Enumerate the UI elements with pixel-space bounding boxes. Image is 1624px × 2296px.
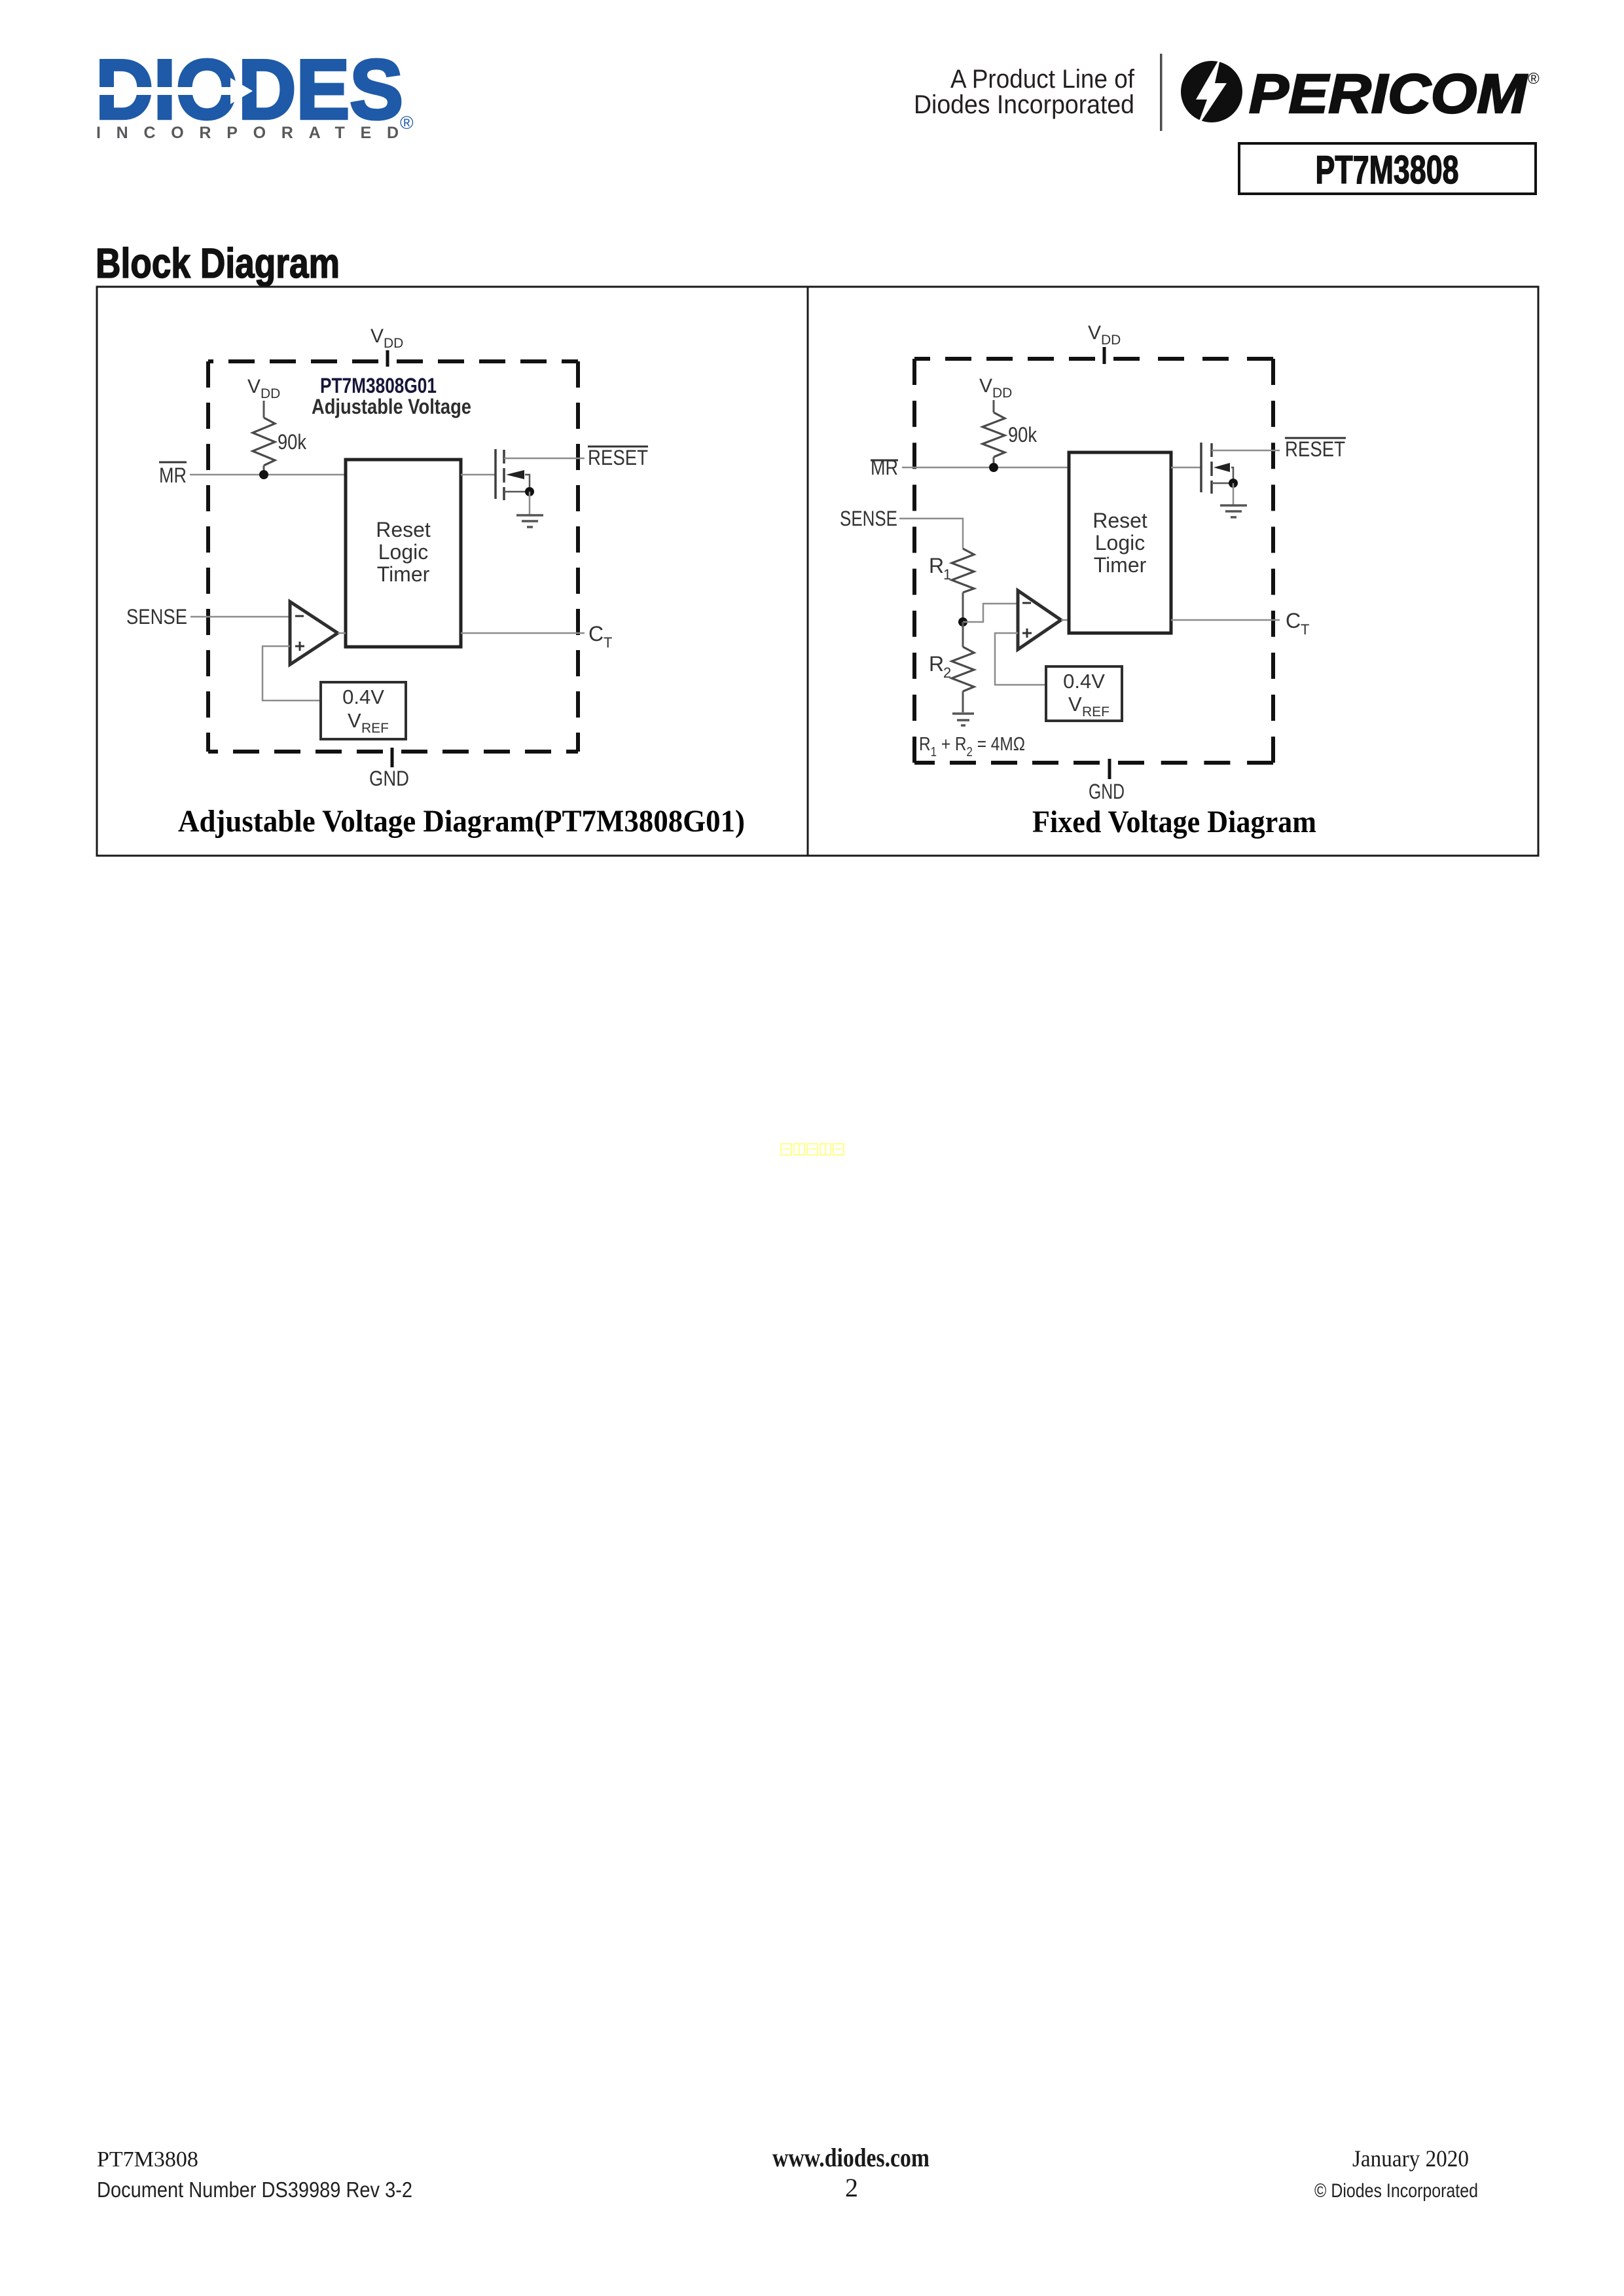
svg-text:Adjustable Voltage: Adjustable Voltage	[312, 395, 471, 418]
svg-text:DD: DD	[992, 386, 1012, 401]
svg-text:PT7M3808: PT7M3808	[97, 2147, 198, 2172]
svg-text:MR: MR	[159, 464, 187, 487]
svg-text:V: V	[348, 709, 361, 732]
svg-text:Adjustable Voltage Diagram(PT7: Adjustable Voltage Diagram(PT7M3808G01)	[178, 804, 745, 839]
svg-text:2: 2	[845, 2173, 858, 2202]
svg-text:GND: GND	[369, 767, 409, 790]
svg-text:0.4V: 0.4V	[1063, 670, 1105, 693]
svg-text:RESET: RESET	[1285, 437, 1345, 461]
svg-text:PT7M3808: PT7M3808	[1316, 148, 1459, 192]
svg-text:SENSE: SENSE	[840, 507, 897, 530]
svg-text:Document Number DS39989 Rev 3-: Document Number DS39989 Rev 3-2	[97, 2178, 412, 2202]
svg-text:REF: REF	[361, 721, 389, 736]
svg-text:1: 1	[943, 566, 951, 583]
svg-text:®: ®	[1528, 70, 1540, 88]
svg-text:DD: DD	[261, 386, 280, 401]
svg-text:Fixed Voltage Diagram: Fixed Voltage Diagram	[1032, 805, 1316, 839]
svg-text:V: V	[370, 325, 384, 347]
svg-text:Reset: Reset	[1092, 509, 1147, 532]
svg-text:A Product Line of: A Product Line of	[950, 65, 1135, 94]
svg-text:© Diodes Incorporated: © Diodes Incorporated	[1314, 2180, 1478, 2202]
svg-text:0.4V: 0.4V	[342, 685, 384, 708]
svg-text:T: T	[604, 634, 612, 651]
svg-text:R: R	[929, 554, 944, 577]
svg-text:Block Diagram: Block Diagram	[96, 240, 340, 287]
svg-text:MR: MR	[871, 456, 898, 479]
svg-text:90k: 90k	[1008, 423, 1038, 446]
svg-text:DD: DD	[1101, 333, 1121, 348]
svg-text:Logic: Logic	[1095, 531, 1146, 555]
svg-text:C: C	[1286, 609, 1301, 632]
svg-text:REF: REF	[1082, 704, 1110, 720]
svg-text:Logic: Logic	[378, 540, 429, 564]
svg-text:V: V	[1088, 322, 1101, 344]
svg-text:V: V	[247, 376, 261, 397]
svg-text:Diodes Incorporated: Diodes Incorporated	[914, 90, 1134, 119]
svg-text:RESET: RESET	[588, 446, 648, 469]
svg-text:Timer: Timer	[377, 562, 430, 586]
svg-text:January 2020: January 2020	[1352, 2145, 1469, 2172]
svg-text:V: V	[1068, 693, 1082, 716]
svg-text:DD: DD	[384, 336, 403, 351]
svg-text:www.diodes.com: www.diodes.com	[772, 2143, 929, 2172]
svg-text:SENSE: SENSE	[126, 605, 187, 629]
svg-text:®: ®	[400, 113, 414, 133]
svg-text:Timer: Timer	[1094, 553, 1147, 577]
svg-text:C: C	[588, 622, 604, 646]
svg-text:R: R	[929, 652, 944, 676]
svg-text:2: 2	[943, 665, 951, 681]
svg-text:PT7M3808G01: PT7M3808G01	[320, 374, 437, 397]
svg-text:GND: GND	[1089, 780, 1125, 803]
svg-text:90k: 90k	[278, 430, 307, 454]
svg-text:Reset: Reset	[376, 518, 431, 541]
svg-text:PERICOM: PERICOM	[1249, 63, 1528, 124]
svg-text:T: T	[1301, 621, 1309, 638]
svg-text:V: V	[979, 375, 992, 397]
